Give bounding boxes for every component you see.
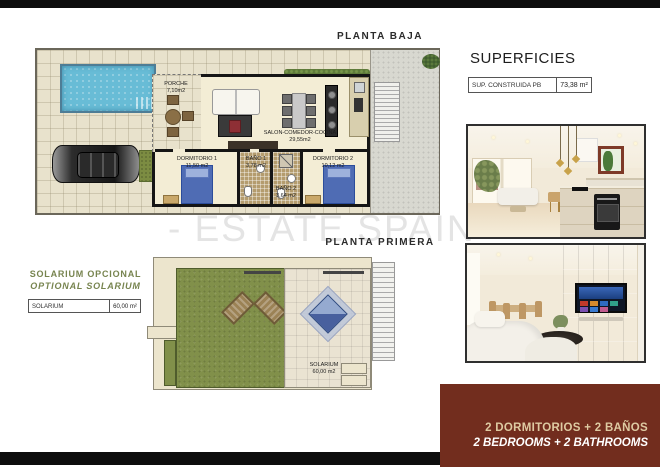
bed-pillow	[185, 168, 209, 178]
porch-label: PORCHE 7,10m2	[153, 81, 199, 94]
railing	[323, 271, 364, 274]
dining-chair	[282, 106, 292, 116]
solarium-table-value: 60,00 m²	[109, 300, 140, 312]
kitchen-stool	[328, 121, 336, 129]
bedroom-1-area-value: 11,50 m2	[157, 163, 237, 170]
porch-area-value: 7,10m2	[153, 88, 199, 95]
superficies-title: SUPERFICIES	[470, 50, 576, 67]
kitchen-counter	[349, 77, 369, 137]
salon-label: SALON-COMEDOR-COCINA 29,55m2	[240, 130, 360, 143]
bathroom-2-area-value: 3,64 m2	[269, 193, 303, 200]
bed-1	[181, 165, 213, 204]
indoor-plant	[474, 160, 500, 192]
toilet	[244, 186, 252, 197]
solarium-table-label: SOLARIUM	[29, 300, 109, 312]
shower	[279, 154, 293, 168]
bathroom-1-name: BAÑO 1	[239, 156, 273, 163]
pendant-light-wire	[568, 126, 569, 168]
wooden-chair-legs	[550, 202, 560, 212]
induction-hob	[572, 187, 588, 191]
solarium-optional-title-en: OPTIONAL SOLARIUM	[28, 281, 143, 291]
ceiling-spotlight	[497, 253, 500, 256]
parked-car	[52, 145, 140, 183]
dining-table	[292, 93, 306, 129]
door-opening	[323, 149, 335, 152]
sofa	[212, 89, 260, 115]
dining-chair	[535, 301, 542, 317]
sofa-cushion	[475, 311, 505, 327]
railing	[244, 271, 281, 274]
solarium-optional-title-es: SOLARIUM OPCIONAL	[28, 269, 143, 279]
superficies-table: SUP. CONSTRUIDA PB 73,38 m²	[468, 77, 592, 93]
bedroom-1-name: DORMITORIO 1	[157, 156, 237, 163]
pendant-light	[564, 167, 572, 175]
porch-chair	[167, 95, 179, 105]
summary-line-spanish: 2 DORMITORIOS + 2 BAÑOS	[485, 422, 648, 434]
dining-chair	[519, 303, 526, 319]
sun-lounger	[253, 291, 287, 325]
bathroom-2-name: BAÑO 2	[269, 186, 303, 193]
wall-mounted-tv	[575, 283, 627, 313]
porch-chair	[167, 127, 179, 137]
kitchen-stool	[328, 91, 336, 99]
exterior-stairs-first-floor	[372, 262, 395, 361]
superficies-row-label: SUP. CONSTRUIDA PB	[469, 78, 556, 92]
grass-strip	[164, 340, 176, 386]
bedroom-1-label: DORMITORIO 1 11,50 m2	[157, 156, 237, 169]
white-sofa-armrest	[525, 337, 577, 363]
tv-app-tile	[610, 301, 618, 306]
car-roof	[77, 152, 119, 178]
bedroom-2-area-value: 10,12 m2	[295, 163, 371, 170]
kitchen-window	[598, 146, 624, 174]
ceiling-spotlight	[618, 134, 621, 137]
porch-round-table	[165, 109, 181, 125]
house-outline: PORCHE 7,10m2	[152, 74, 370, 207]
built-in-oven	[594, 194, 620, 230]
kitchen-stool	[328, 106, 336, 114]
coffee-table	[510, 206, 526, 212]
bench	[341, 375, 367, 386]
ceiling-spotlight	[634, 142, 637, 145]
dining-chair	[282, 94, 292, 104]
bottom-black-bar	[0, 452, 441, 465]
interior-photo-living	[465, 243, 646, 363]
summary-red-box: 2 DORMITORIOS + 2 BAÑOS 2 BEDROOMS + 2 B…	[440, 384, 660, 467]
solarium-area-value: 60,00 m2	[294, 369, 354, 376]
dining-chair	[306, 106, 316, 116]
pool-steps	[136, 97, 152, 109]
salon-name: SALON-COMEDOR-COCINA	[240, 130, 360, 137]
porch-name: PORCHE	[153, 81, 199, 88]
solarium-label: SOLARIUM 60,00 m2	[294, 362, 354, 375]
oven-window	[597, 204, 619, 222]
bedroom-2-label: DORMITORIO 2 10,12 m2	[295, 156, 371, 169]
ground-floor-title: PLANTA BAJA	[300, 31, 460, 42]
first-floor-title: PLANTA PRIMERA	[300, 237, 460, 248]
exterior-stairs	[374, 82, 400, 142]
porch-area: PORCHE 7,10m2	[152, 74, 201, 152]
top-black-bar	[0, 0, 660, 8]
white-sofa	[498, 188, 538, 205]
porch-chair	[182, 111, 194, 121]
bedroom-2-name: DORMITORIO 2	[295, 156, 371, 163]
kitchen-hob	[354, 98, 363, 112]
bathroom-1-label: BAÑO 1 3,78 m2	[239, 156, 273, 169]
salon-area-value: 29,55m2	[240, 137, 360, 144]
white-column	[637, 245, 646, 363]
sink	[287, 174, 296, 183]
tv-app-tile	[590, 307, 598, 312]
kitchen-sink	[354, 82, 365, 93]
door-opening	[173, 149, 185, 152]
dining-chair	[282, 118, 292, 128]
oven-handle	[597, 198, 617, 200]
dresser	[305, 195, 321, 204]
bathroom-1-area-value: 3,78 m2	[239, 163, 273, 170]
pendant-light-wire	[576, 126, 577, 156]
dining-chair	[306, 118, 316, 128]
dining-chair	[306, 94, 316, 104]
ceiling-spotlight	[492, 136, 495, 139]
solarium-name: SOLARIUM	[294, 362, 354, 369]
dresser	[163, 195, 179, 204]
ceiling-spotlight	[526, 140, 529, 143]
ceiling-spotlight	[529, 257, 532, 260]
bed-pillow	[327, 168, 351, 178]
pendant-light-wire	[560, 126, 561, 160]
bathroom-2-label: BAÑO 2 3,64 m2	[269, 186, 303, 199]
tv-app-tile	[580, 307, 588, 312]
brochure-page: - ESTATE SPAIN PLANTA BAJA PLANTA PRIMER…	[0, 0, 660, 467]
sun-lounger	[221, 291, 255, 325]
solarium-table: SOLARIUM 60,00 m²	[28, 299, 141, 313]
roof-garden	[176, 268, 286, 388]
interior-photo-kitchen	[466, 124, 646, 239]
ground-floor-plan: PORCHE 7,10m2	[35, 48, 440, 215]
bush	[422, 54, 440, 69]
foliage-through-window	[603, 151, 613, 171]
bed-2	[323, 165, 355, 204]
superficies-row-value: 73,38 m²	[556, 78, 591, 92]
tv-app-tile	[590, 301, 598, 306]
tv-shelf	[579, 317, 623, 321]
tv-screen	[579, 287, 623, 299]
first-floor-plan: SOLARIUM 60,00 m2	[153, 257, 372, 390]
tv-app-tile	[600, 301, 608, 306]
summary-line-english: 2 BEDROOMS + 2 BATHROOMS	[473, 437, 648, 449]
swimming-pool	[60, 64, 156, 113]
tv-app-tile	[580, 301, 588, 306]
tv-app-tile	[600, 307, 608, 312]
